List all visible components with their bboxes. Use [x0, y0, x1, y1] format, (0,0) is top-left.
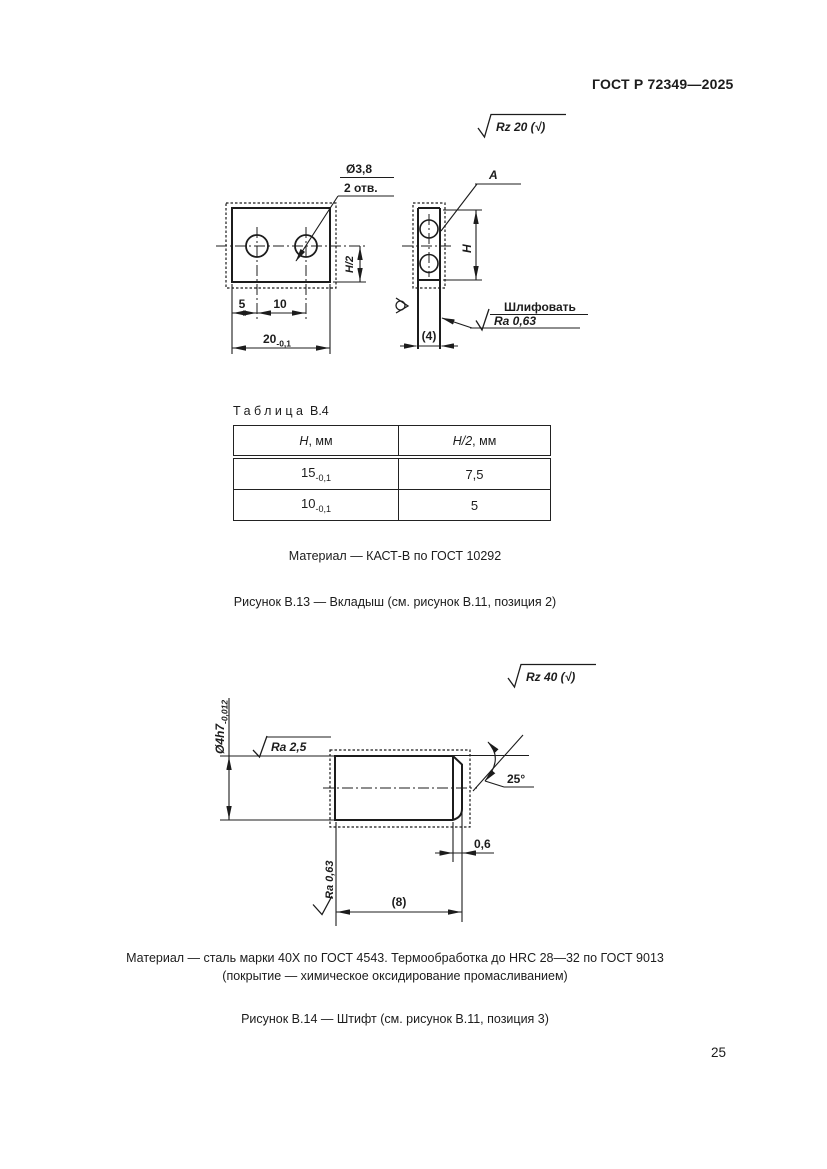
dim-diameter: Ø4h7-0,012 [213, 698, 335, 820]
col-header-h: H, мм [234, 426, 399, 458]
insert-side-view: A H (4) [396, 168, 588, 349]
grind-note: Шлифовать Ra 0,63 [442, 300, 588, 330]
cell-75: 7,5 [399, 457, 551, 490]
dim-10-label: 10 [273, 297, 287, 311]
grind-label: Шлифовать [504, 300, 576, 314]
dim-chamfer: 0,6 [435, 812, 494, 922]
dim-diameter-label: Ø4h7-0,012 [213, 700, 230, 754]
dim-20: 20-0,1 [232, 284, 330, 354]
caption-figure-b13: Рисунок В.13 — Вкладыш (см. рисунок В.11… [0, 595, 790, 609]
table-row: 15-0,1 7,5 [234, 457, 551, 490]
figure-b14-drawing: Rz 40 (√) Ø4h7-0,012 Ra 2,5 [190, 650, 630, 940]
no-machining-icon [396, 298, 408, 313]
hole-diameter-label: Ø3,8 [346, 162, 372, 176]
material-b14-line2: (покрытие — химическое оксидирование про… [0, 967, 790, 985]
dim-h-half: H/2 [333, 246, 366, 282]
dim-chamfer-label: 0,6 [474, 837, 491, 851]
caption-figure-b14: Рисунок В.14 — Штифт (см. рисунок В.11, … [0, 1012, 790, 1026]
ra063-label: Ra 0,63 [324, 860, 336, 899]
roughness-rz20-label: Rz 20 (√) [496, 120, 545, 134]
roughness-mark-rz20: Rz 20 (√) [478, 115, 566, 138]
dim-angle: 25° [453, 735, 534, 791]
col-header-h-half: H/2, мм [399, 426, 551, 458]
dim-length: (8) [336, 822, 462, 926]
dim-length-label: (8) [392, 895, 407, 909]
table-row: 10-0,1 5 [234, 490, 551, 521]
dim-thickness: (4) [400, 329, 458, 346]
dim-angle-label: 25° [507, 772, 525, 786]
table-b4-title: Таблица В.4 [233, 404, 551, 418]
roughness-mark-rz40: Rz 40 (√) [508, 665, 596, 688]
grind-ra-label: Ra 0,63 [494, 314, 536, 328]
document-page: ГОСТ Р 72349—2025 Rz 20 (√) [0, 0, 827, 1169]
table-b4-block: Таблица В.4 H, мм H/2, мм 15-0,1 7,5 10-… [233, 404, 551, 521]
table-title-number: В.4 [310, 404, 329, 418]
dim-thickness-label: (4) [422, 329, 437, 343]
ra25-label: Ra 2,5 [271, 740, 307, 754]
insert-front-view: Ø3,8 2 отв. H/2 5 10 [216, 162, 394, 354]
material-note-b13: Материал — КАСТ-В по ГОСТ 10292 [0, 549, 790, 563]
pin-body [323, 750, 477, 827]
dim-h-half-label: H/2 [344, 256, 356, 273]
roughness-mark-ra063: Ra 0,63 [313, 860, 336, 914]
cell-5: 5 [399, 490, 551, 521]
material-note-b14: Материал — сталь марки 40Х по ГОСТ 4543.… [0, 949, 790, 985]
material-b14-line1: Материал — сталь марки 40Х по ГОСТ 4543.… [0, 949, 790, 967]
dim-20-label: 20-0,1 [263, 332, 291, 349]
cell-h-15: 15-0,1 [234, 457, 399, 490]
view-a-label: A [488, 168, 498, 182]
table-title-word: Таблица [233, 404, 307, 418]
cell-h-10: 10-0,1 [234, 490, 399, 521]
page-number: 25 [711, 1045, 726, 1060]
dim-5-label: 5 [239, 297, 246, 311]
table-b4: H, мм H/2, мм 15-0,1 7,5 10-0,1 5 [233, 425, 551, 521]
dim-h-label: H [460, 244, 474, 253]
page-header: ГОСТ Р 72349—2025 [592, 76, 734, 92]
roughness-mark-ra25: Ra 2,5 [253, 736, 331, 757]
roughness-rz40-label: Rz 40 (√) [526, 670, 575, 684]
figure-b13-drawing: Rz 20 (√) Ø3,8 2 отв. [150, 100, 630, 380]
hole-count-label: 2 отв. [344, 181, 378, 195]
view-a-callout: A [441, 168, 521, 231]
